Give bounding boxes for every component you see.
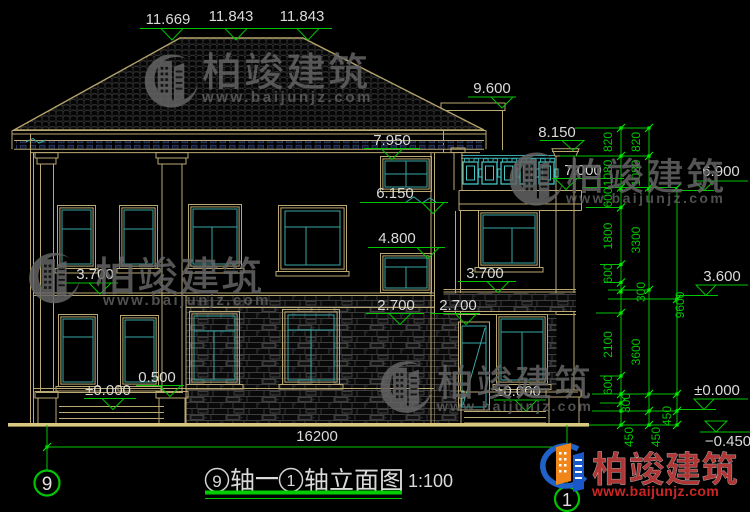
svg-text:3300: 3300 [629,226,643,253]
svg-text:1:100: 1:100 [408,471,453,491]
svg-text:820: 820 [629,132,643,152]
svg-text:16200: 16200 [296,428,338,445]
svg-text:300: 300 [634,282,648,302]
svg-text:9: 9 [42,474,53,495]
svg-text:1: 1 [562,490,572,510]
svg-text:1: 1 [287,473,296,490]
svg-text:450: 450 [660,406,674,426]
svg-text:www.baijunjz.com: www.baijunjz.com [436,398,593,414]
svg-text:3600: 3600 [629,338,643,365]
svg-text:±0.000: ±0.000 [694,382,740,399]
svg-text:600: 600 [601,375,615,395]
svg-text:6.150: 6.150 [376,185,414,202]
svg-text:11.669: 11.669 [146,11,191,28]
svg-text:9.600: 9.600 [473,80,511,97]
svg-text:450: 450 [649,427,663,447]
svg-text:www.baijunjz.com: www.baijunjz.com [565,190,725,206]
svg-text:7.950: 7.950 [373,132,411,149]
svg-text:3.700: 3.700 [466,265,504,282]
svg-text:2100: 2100 [601,331,615,358]
svg-text:3.600: 3.600 [703,268,741,285]
svg-text:11.843: 11.843 [209,8,254,25]
svg-text:2.700: 2.700 [377,297,415,314]
svg-text:11.843: 11.843 [280,8,325,25]
svg-text:8.150: 8.150 [538,124,576,141]
svg-text:600: 600 [601,263,615,283]
svg-text:1800: 1800 [601,222,615,249]
svg-text:www.baijunjz.com: www.baijunjz.com [201,89,373,106]
svg-text:4.800: 4.800 [378,230,416,247]
svg-text:www.baijunjz.com: www.baijunjz.com [102,292,271,309]
svg-text:450: 450 [622,427,636,447]
svg-text:9600: 9600 [673,291,687,318]
svg-text:0.500: 0.500 [138,369,176,386]
svg-text:9: 9 [212,472,221,491]
svg-text:www.baijunjz.com: www.baijunjz.com [591,483,719,499]
svg-text:300: 300 [619,393,633,413]
svg-text:−0.450: −0.450 [705,433,750,450]
svg-text:2.700: 2.700 [439,297,477,314]
svg-text:820: 820 [601,132,615,152]
svg-text:±0.000: ±0.000 [85,382,131,399]
